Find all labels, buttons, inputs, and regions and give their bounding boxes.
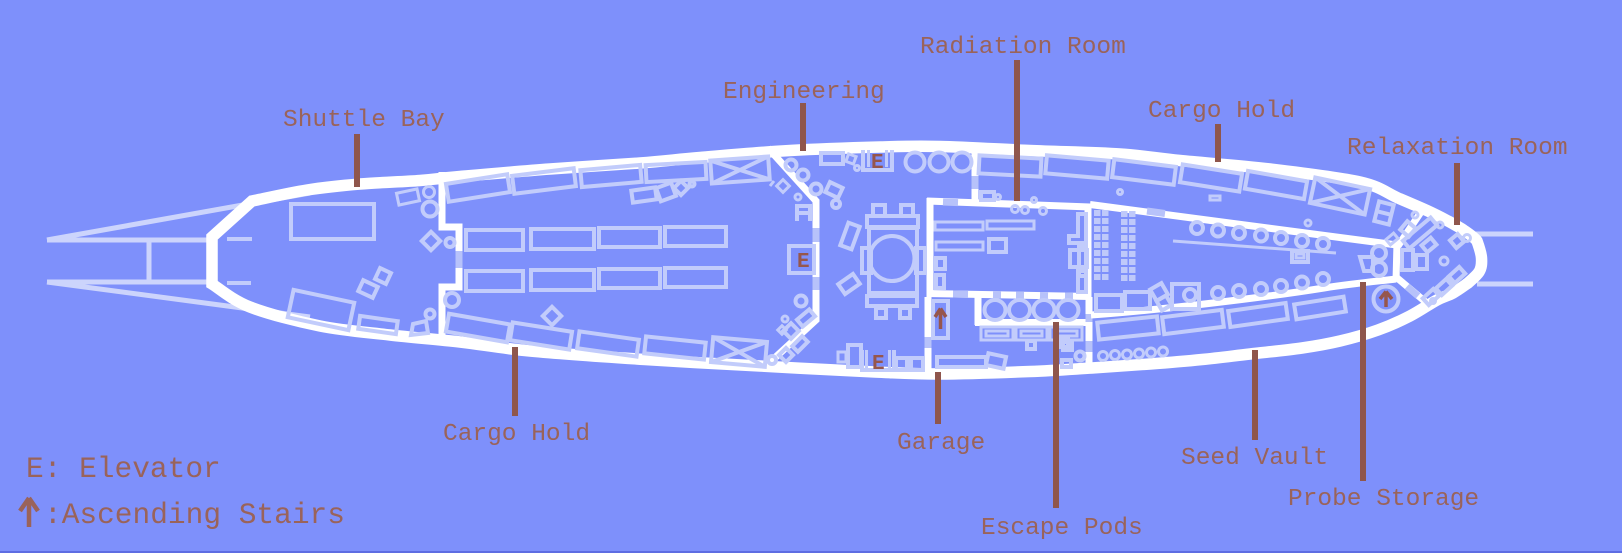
- svg-text:Cargo Hold: Cargo Hold: [443, 421, 590, 448]
- svg-text:Shuttle Bay: Shuttle Bay: [283, 107, 445, 134]
- svg-text:E: E: [872, 353, 885, 376]
- svg-text:Relaxation Room: Relaxation Room: [1347, 135, 1568, 162]
- svg-text:E: Elevator: E: Elevator: [26, 452, 221, 486]
- svg-text:Garage: Garage: [897, 430, 985, 457]
- svg-text:Radiation Room: Radiation Room: [920, 34, 1126, 61]
- svg-text:Engineering: Engineering: [723, 79, 885, 106]
- svg-text:Escape Pods: Escape Pods: [981, 515, 1143, 542]
- svg-text:Probe Storage: Probe Storage: [1288, 486, 1479, 513]
- svg-text:Seed Vault: Seed Vault: [1181, 445, 1328, 472]
- svg-text:Cargo Hold: Cargo Hold: [1148, 98, 1295, 125]
- svg-text:E: E: [797, 251, 810, 274]
- svg-text:E: E: [871, 152, 884, 175]
- svg-text::Ascending Stairs: :Ascending Stairs: [44, 498, 345, 532]
